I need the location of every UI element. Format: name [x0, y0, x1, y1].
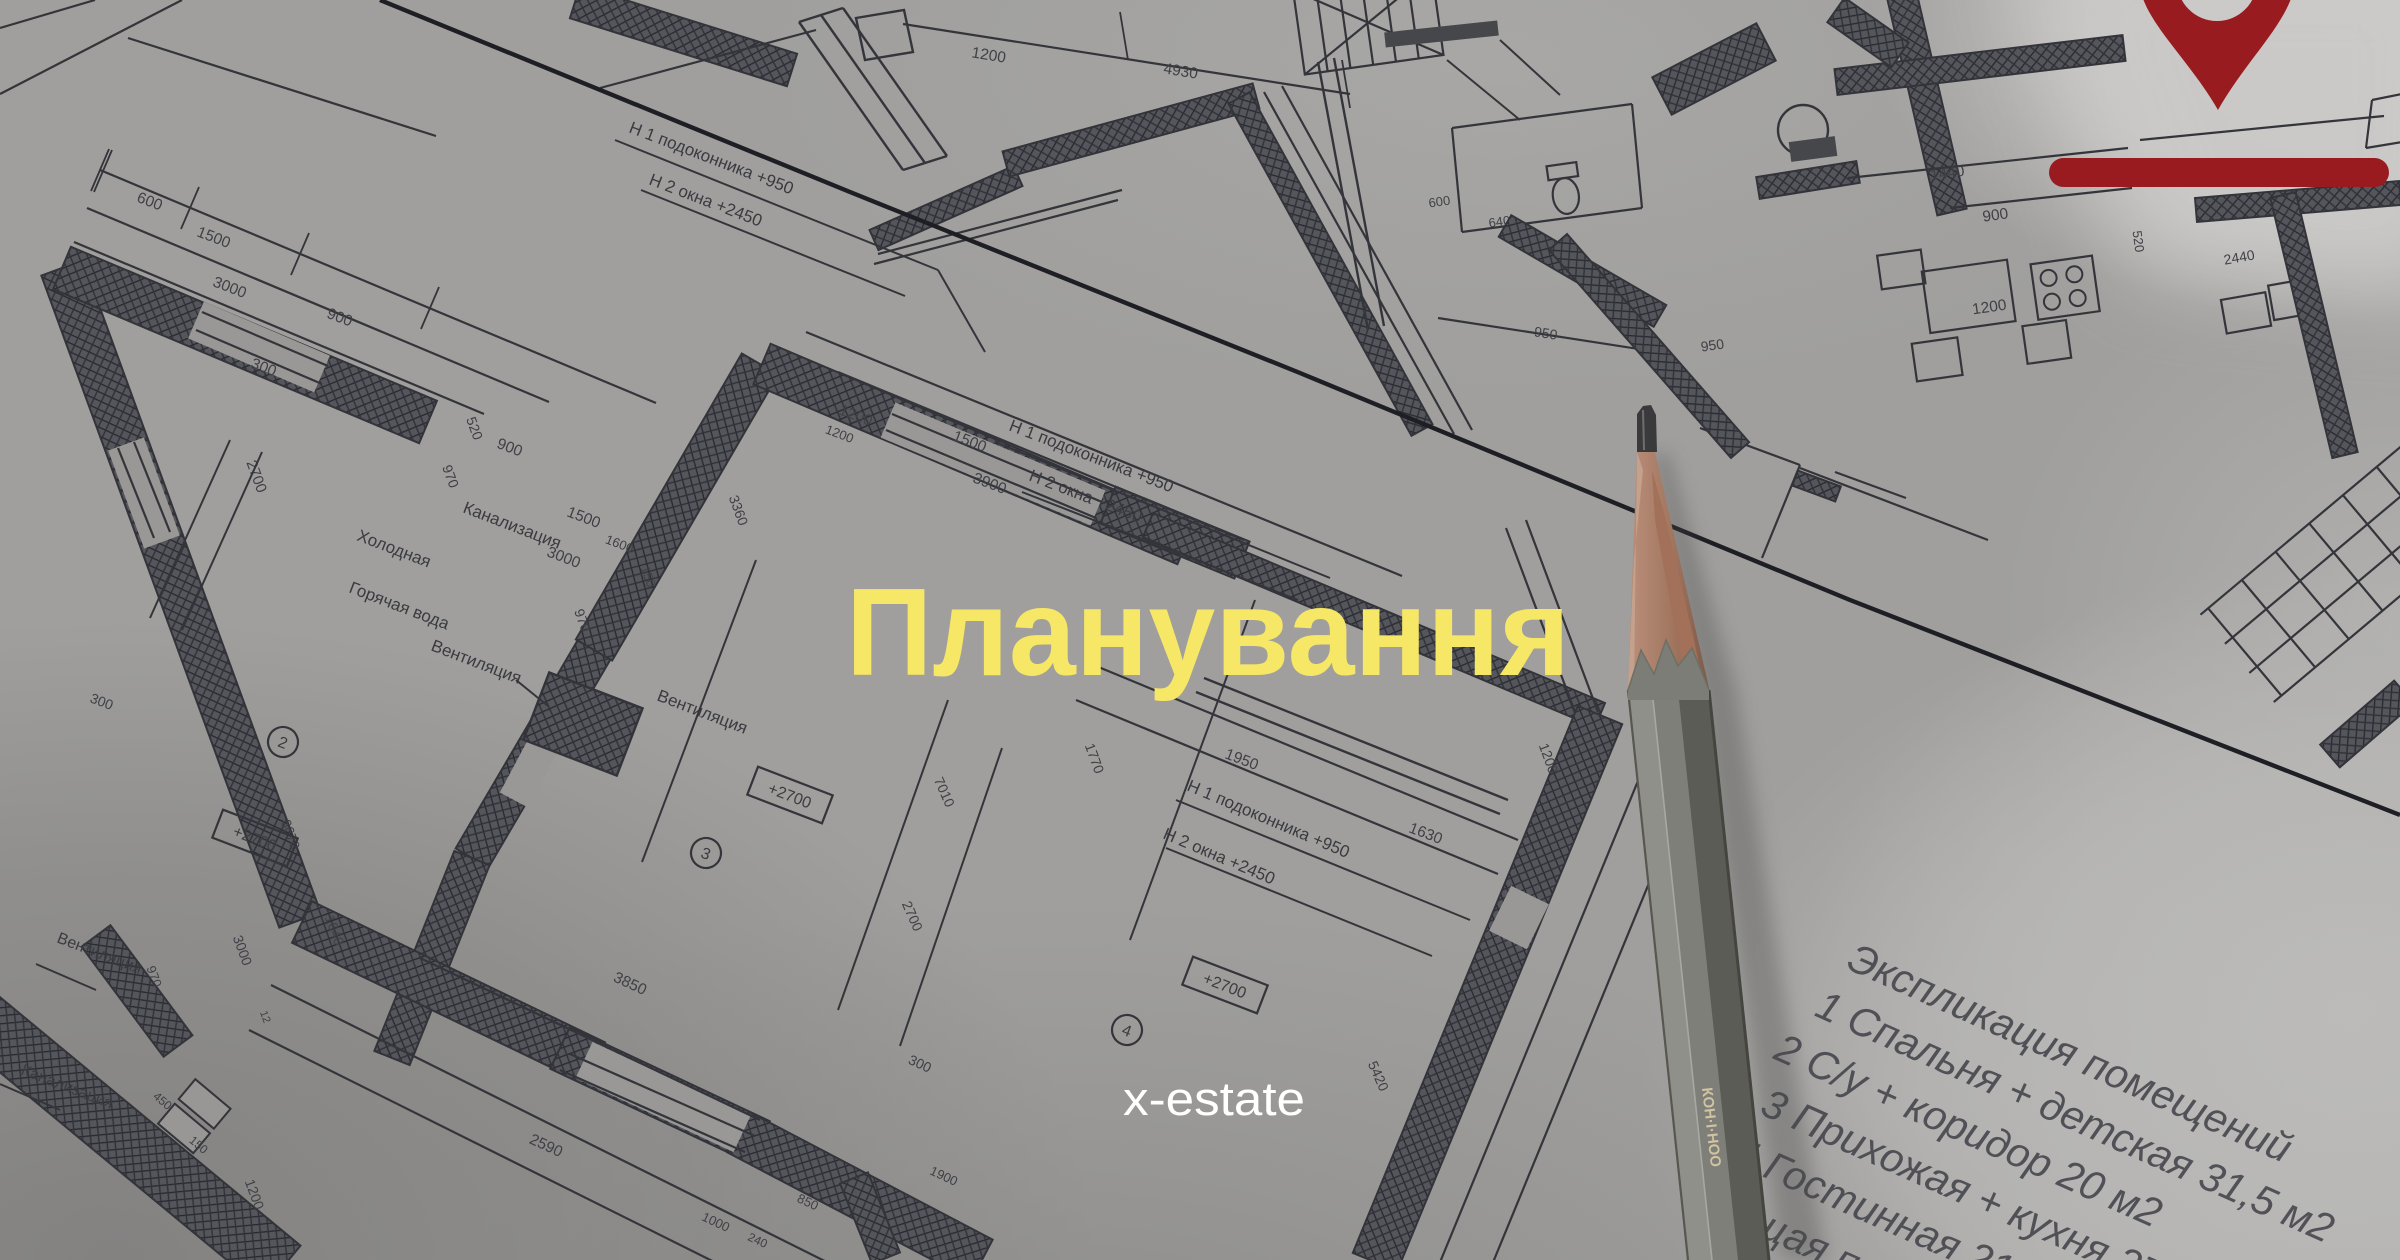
svg-text:950: 950	[1700, 335, 1726, 354]
svg-text:900: 900	[1981, 205, 2009, 225]
svg-text:600: 600	[1428, 193, 1452, 211]
svg-text:Планування: Планування	[846, 564, 1570, 702]
svg-text:520: 520	[2130, 230, 2148, 254]
svg-text:x-estate: x-estate	[1123, 1072, 1305, 1125]
